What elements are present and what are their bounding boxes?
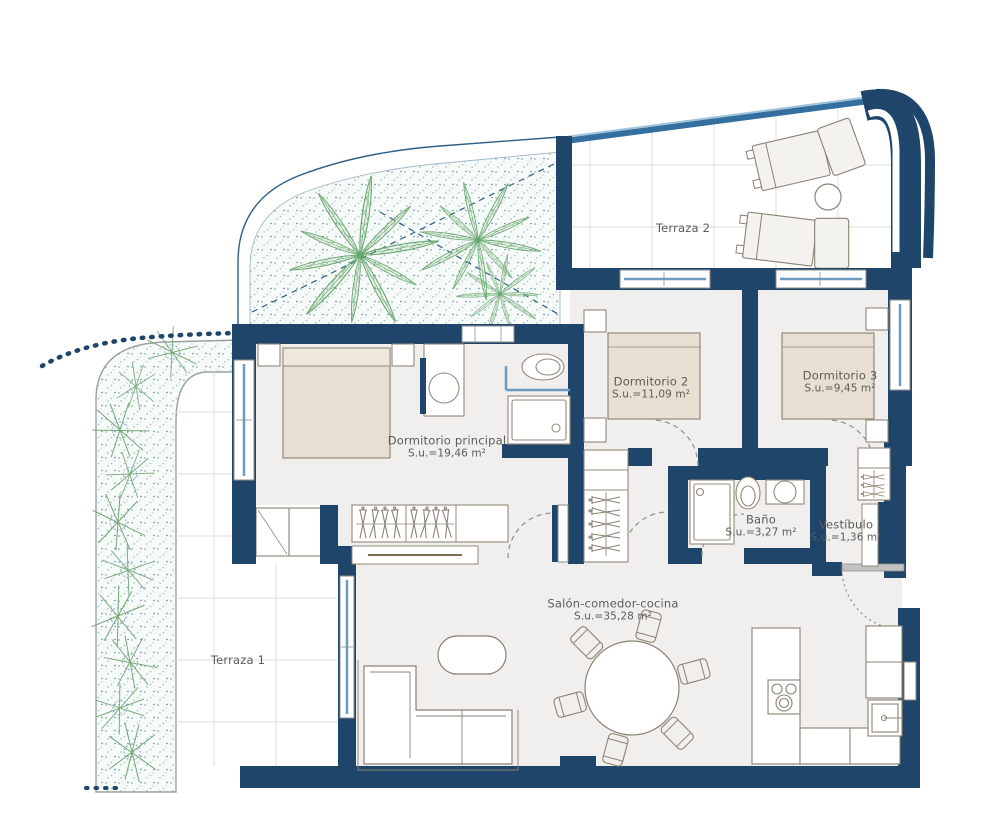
- terrace-side-table: [815, 184, 841, 210]
- window: [462, 326, 514, 342]
- toilet-icon: [522, 354, 564, 380]
- nightstand: [866, 308, 888, 330]
- window: [234, 360, 254, 480]
- washbasin: [766, 480, 804, 504]
- shower: [690, 480, 734, 544]
- window: [776, 270, 866, 288]
- sliding-glass-door: [340, 576, 354, 718]
- palm-area: [238, 137, 562, 352]
- toilet-icon: [736, 477, 760, 509]
- bed-dorm3: [782, 333, 874, 419]
- window: [890, 300, 910, 390]
- terrace2: [558, 95, 910, 272]
- floor-plan-canvas: [0, 0, 1002, 834]
- wall-vent: [904, 662, 916, 700]
- open-door-leaf: [558, 505, 568, 562]
- bed-principal: [283, 348, 390, 458]
- floor-plan-page: Terraza 2 Dormitorio 2 S.u.=11,09 m² Dor…: [0, 0, 1002, 834]
- coffee-table: [438, 636, 506, 674]
- nightstand: [584, 418, 606, 442]
- nightstand: [392, 344, 414, 366]
- terrace-storage-box: [256, 508, 322, 556]
- shower: [508, 396, 570, 444]
- nightstand: [866, 420, 888, 442]
- window: [620, 270, 710, 288]
- hob-icon: [768, 680, 800, 714]
- bed-dorm2: [608, 333, 700, 419]
- wardrobe-tall: [584, 450, 628, 562]
- nightstand: [258, 344, 280, 366]
- washbasin-unit: [420, 344, 464, 416]
- sink: [868, 700, 902, 736]
- nightstand: [584, 310, 606, 332]
- garden-bed: [42, 321, 240, 792]
